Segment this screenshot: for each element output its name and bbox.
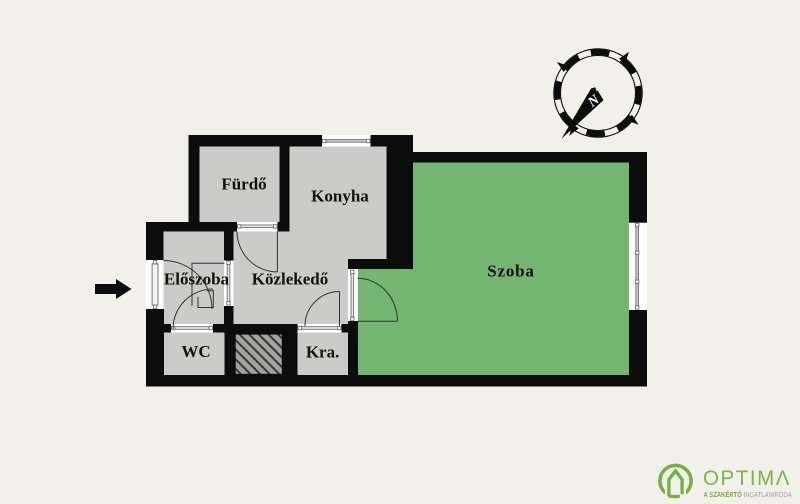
svg-text:Konyha: Konyha <box>311 187 369 206</box>
svg-text:OPTIMΛ: OPTIMΛ <box>703 467 791 490</box>
svg-text:Szoba: Szoba <box>487 262 534 281</box>
svg-text:Fürdő: Fürdő <box>221 175 267 194</box>
svg-text:WC: WC <box>181 342 210 361</box>
svg-text:Előszoba: Előszoba <box>164 270 230 289</box>
svg-text:Kra.: Kra. <box>306 343 340 362</box>
svg-text:A SZAKÉRTŐ INGATLANIRODA: A SZAKÉRTŐ INGATLANIRODA <box>704 490 792 499</box>
svg-text:Közlekedő: Közlekedő <box>252 270 329 289</box>
